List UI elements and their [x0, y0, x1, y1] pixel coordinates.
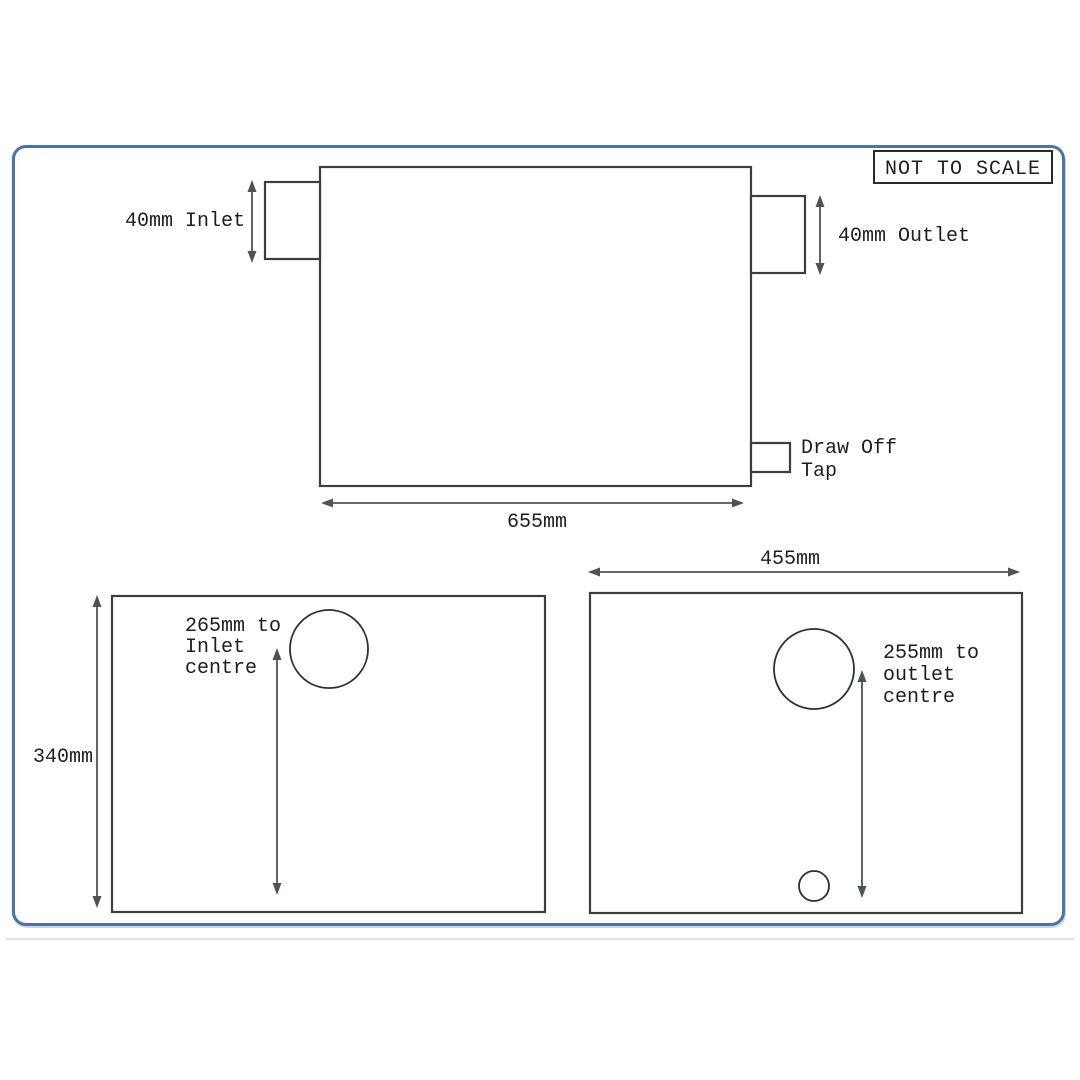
inlet-dimension-arrow [248, 180, 257, 263]
draw-off-hole [799, 871, 829, 901]
tank-width-label: 655mm [507, 511, 567, 534]
inlet-centre-label-line3: centre [185, 657, 257, 680]
inlet-pipe [265, 182, 320, 259]
outlet-centre-label-line2: outlet [883, 664, 955, 687]
outlet-centre-label-line3: centre [883, 686, 955, 709]
outlet-pipe [751, 196, 805, 273]
diagram-canvas: NOT TO SCALE 40mm Inlet 40mm Outlet Draw… [0, 0, 1080, 1080]
draw-off-tap-label-line2: Tap [801, 460, 837, 483]
tank-body-side-view [320, 167, 751, 486]
outlet-centre-label-line1: 255mm to [883, 642, 979, 665]
inlet-centre-label-line2: Inlet [185, 636, 245, 659]
outlet-dimension-arrow [816, 195, 825, 275]
draw-off-tap-label-line1: Draw Off [801, 437, 897, 460]
draw-off-tap [751, 443, 790, 472]
panel-width-label: 455mm [760, 548, 820, 571]
inlet-hole [290, 610, 368, 688]
panel-height-dimension-arrow [93, 595, 102, 908]
inlet-centre-label-line1: 265mm to [185, 615, 281, 638]
tank-dimension-drawing: NOT TO SCALE 40mm Inlet 40mm Outlet Draw… [0, 0, 1080, 1080]
outlet-size-label: 40mm Outlet [838, 225, 970, 248]
tank-width-dimension-arrow [321, 499, 744, 508]
inlet-size-label: 40mm Inlet [125, 210, 245, 233]
panel-height-label: 340mm [33, 746, 93, 769]
not-to-scale-label: NOT TO SCALE [885, 158, 1041, 181]
outlet-hole [774, 629, 854, 709]
